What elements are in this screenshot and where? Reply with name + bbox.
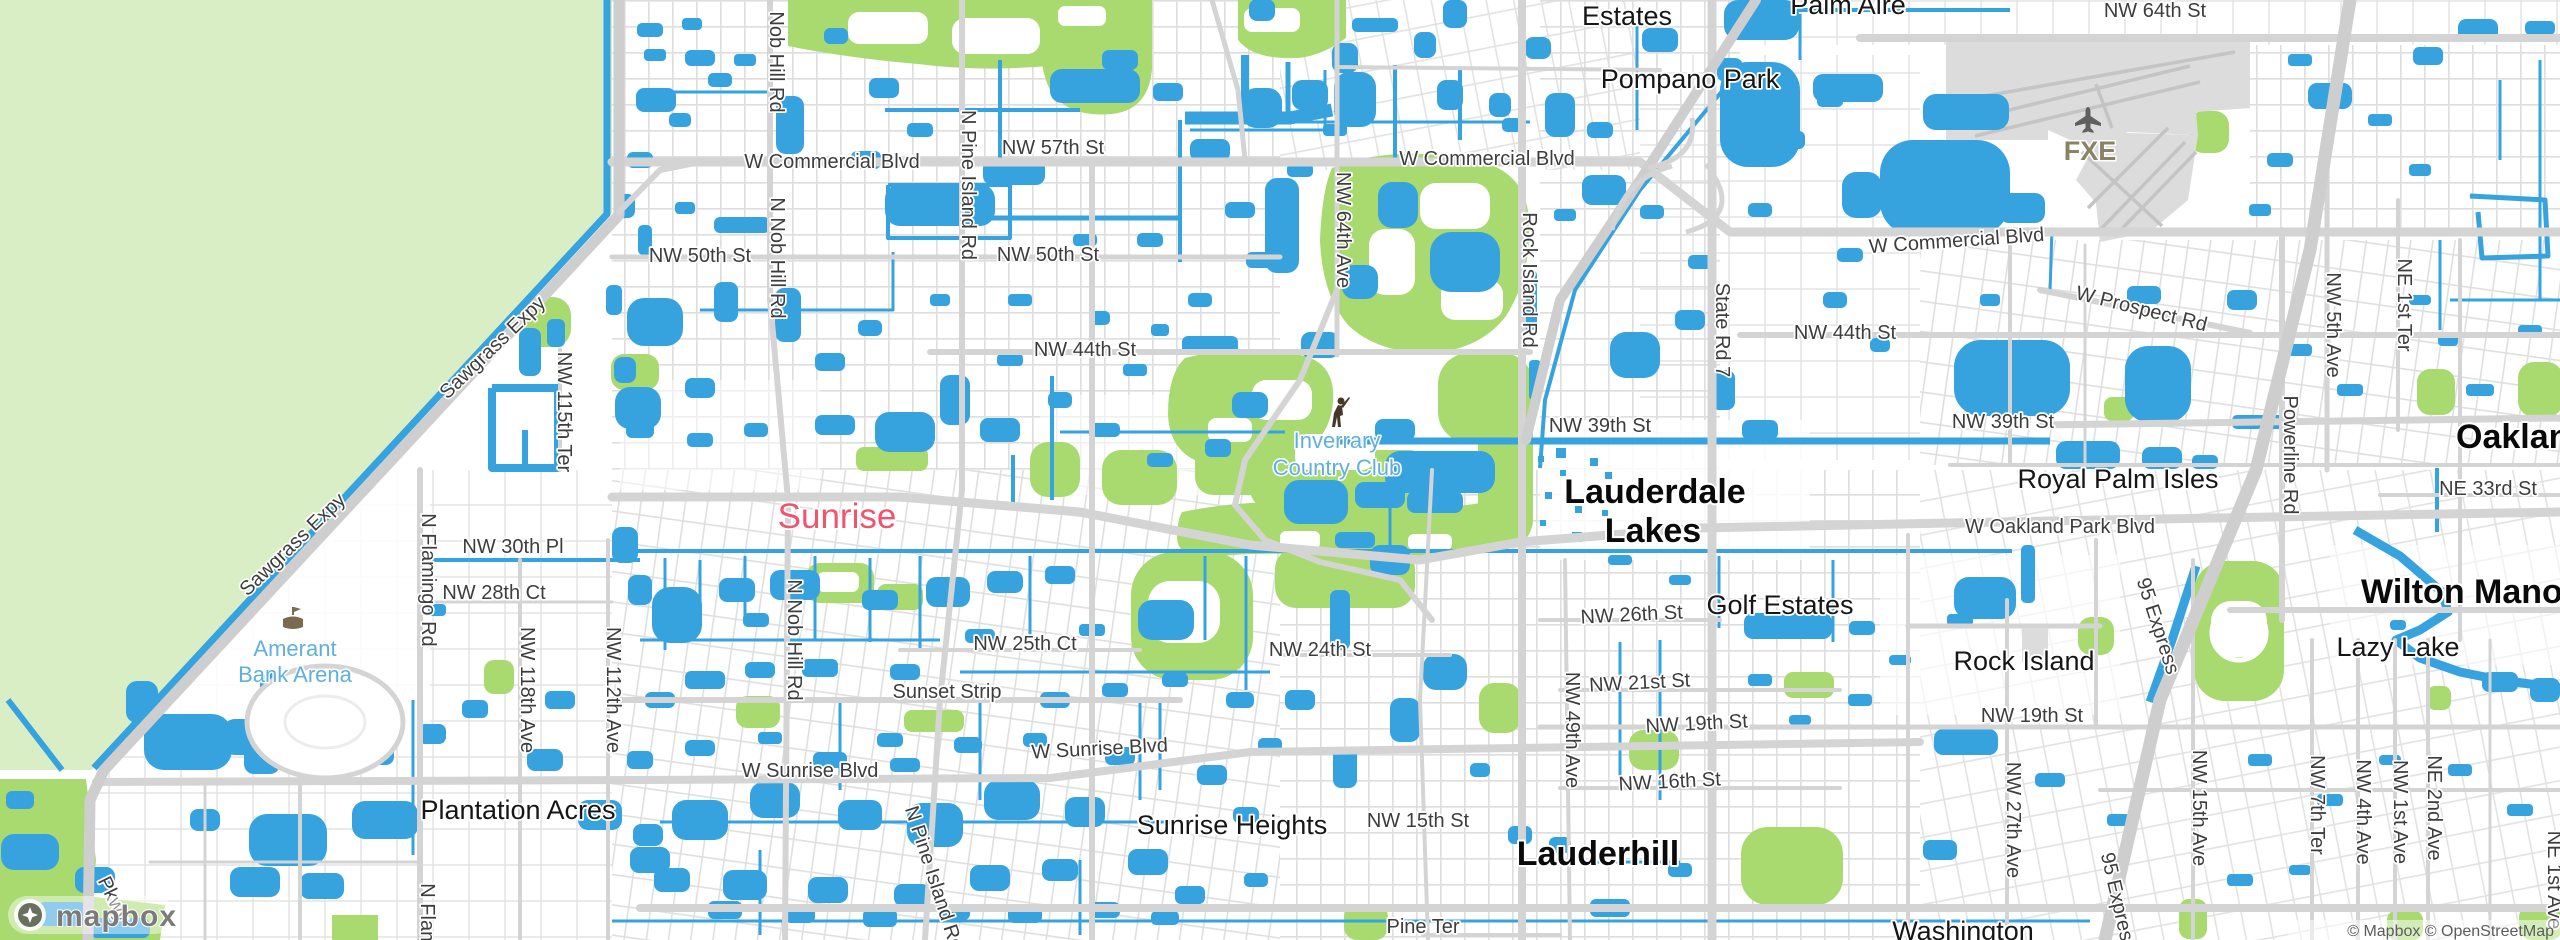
svg-text:Country Club: Country Club <box>1273 455 1401 480</box>
svg-text:NW 1st Ave: NW 1st Ave <box>2389 760 2411 864</box>
svg-text:NW 4th Ave: NW 4th Ave <box>2352 759 2374 864</box>
svg-text:NW 25th Ct: NW 25th Ct <box>973 633 1077 655</box>
svg-text:NW 44th St: NW 44th St <box>1034 339 1137 361</box>
svg-text:Royal Palm Isles: Royal Palm Isles <box>2017 464 2218 494</box>
svg-text:NW 115th Ter: NW 115th Ter <box>553 352 575 473</box>
svg-text:NW 24th St: NW 24th St <box>1269 639 1372 661</box>
svg-text:NW 44th St: NW 44th St <box>1794 322 1897 344</box>
svg-text:NW 5th Ave: NW 5th Ave <box>2322 272 2344 377</box>
svg-text:NW 64th Ave: NW 64th Ave <box>1332 172 1354 288</box>
svg-text:NW 112th Ave: NW 112th Ave <box>602 627 624 753</box>
svg-text:Sunset Strip: Sunset Strip <box>893 681 1002 703</box>
svg-text:NW 28th Ct: NW 28th Ct <box>442 582 546 604</box>
svg-text:Sunrise Heights: Sunrise Heights <box>1137 810 1328 840</box>
svg-text:NW 30th Pl: NW 30th Pl <box>462 536 563 558</box>
svg-text:W Oakland Park Blvd: W Oakland Park Blvd <box>1965 516 2155 538</box>
svg-text:NW 39th St: NW 39th St <box>1952 411 2055 433</box>
svg-text:Lauderhill: Lauderhill <box>1517 835 1679 873</box>
svg-text:N Flamingo Rd: N Flamingo Rd <box>417 513 439 646</box>
svg-text:Bank Arena: Bank Arena <box>238 662 353 687</box>
svg-text:N Flamingo Rd: N Flamingo Rd <box>416 883 438 940</box>
svg-text:NW 49th Ave: NW 49th Ave <box>1561 672 1583 788</box>
svg-text:W Commercial Blvd: W Commercial Blvd <box>1399 148 1575 170</box>
svg-text:Plantation Acres: Plantation Acres <box>420 795 615 825</box>
svg-text:N Nob Hill Rd: N Nob Hill Rd <box>783 579 805 700</box>
svg-text:Palm Aire: Palm Aire <box>1790 0 1906 20</box>
svg-text:Lauderdale: Lauderdale <box>1564 473 1745 511</box>
svg-text:NE 1st Ave: NE 1st Ave <box>2543 831 2560 930</box>
svg-text:Amerant: Amerant <box>253 636 336 661</box>
svg-text:Pompano Park: Pompano Park <box>1601 64 1780 94</box>
svg-text:Sunrise: Sunrise <box>778 497 897 536</box>
svg-text:NW 19th St: NW 19th St <box>1981 705 2084 727</box>
svg-text:NW 27th Ave: NW 27th Ave <box>2002 762 2024 878</box>
svg-text:State Rd 7: State Rd 7 <box>1711 283 1733 378</box>
svg-text:Rock Island: Rock Island <box>1953 646 2094 676</box>
svg-text:Washington: Washington <box>1892 916 2034 940</box>
svg-text:NW 7th Ter: NW 7th Ter <box>2306 755 2328 855</box>
svg-text:NW 39th St: NW 39th St <box>1549 415 1652 437</box>
svg-text:Wilton Manors: Wilton Manors <box>2361 573 2560 611</box>
svg-text:NE 1st Ter: NE 1st Ter <box>2393 259 2415 352</box>
svg-text:W Sunrise Blvd: W Sunrise Blvd <box>742 760 879 782</box>
svg-text:Estates: Estates <box>1582 1 1672 31</box>
svg-text:FXE: FXE <box>2064 136 2117 166</box>
svg-text:NW 15th Ave: NW 15th Ave <box>2188 750 2210 866</box>
svg-text:Powerline Rd: Powerline Rd <box>2279 396 2301 515</box>
svg-text:Lazy Lake: Lazy Lake <box>2336 632 2459 662</box>
svg-text:Pine Ter: Pine Ter <box>1386 916 1459 938</box>
svg-text:NE 2nd Ave: NE 2nd Ave <box>2423 755 2445 860</box>
svg-text:NE 33rd St: NE 33rd St <box>2439 478 2537 500</box>
svg-text:© Mapbox © OpenStreetMap: © Mapbox © OpenStreetMap <box>2347 923 2554 940</box>
svg-text:NW 118th Ave: NW 118th Ave <box>516 627 538 753</box>
svg-text:NW 57th St: NW 57th St <box>1002 137 1105 159</box>
svg-text:NW 64th St: NW 64th St <box>2104 0 2207 22</box>
svg-text:NW 15th St: NW 15th St <box>1367 810 1470 832</box>
svg-text:mapbox: mapbox <box>56 900 177 933</box>
svg-text:W Commercial Blvd: W Commercial Blvd <box>744 151 920 173</box>
svg-text:Rock Island Rd: Rock Island Rd <box>1518 212 1540 348</box>
svg-text:NW 50th St: NW 50th St <box>997 244 1100 266</box>
svg-text:Golf Estates: Golf Estates <box>1706 590 1853 620</box>
svg-text:N Nob Hill Rd: N Nob Hill Rd <box>766 197 788 318</box>
svg-text:Inverrary: Inverrary <box>1294 428 1381 453</box>
svg-text:N Pine Island Rd: N Pine Island Rd <box>957 110 979 260</box>
svg-text:NW 50th St: NW 50th St <box>649 245 752 267</box>
svg-text:Oakland Park: Oakland Park <box>2456 418 2560 456</box>
svg-text:Nob Hill Rd: Nob Hill Rd <box>765 11 787 112</box>
svg-text:Lakes: Lakes <box>1605 512 1701 550</box>
